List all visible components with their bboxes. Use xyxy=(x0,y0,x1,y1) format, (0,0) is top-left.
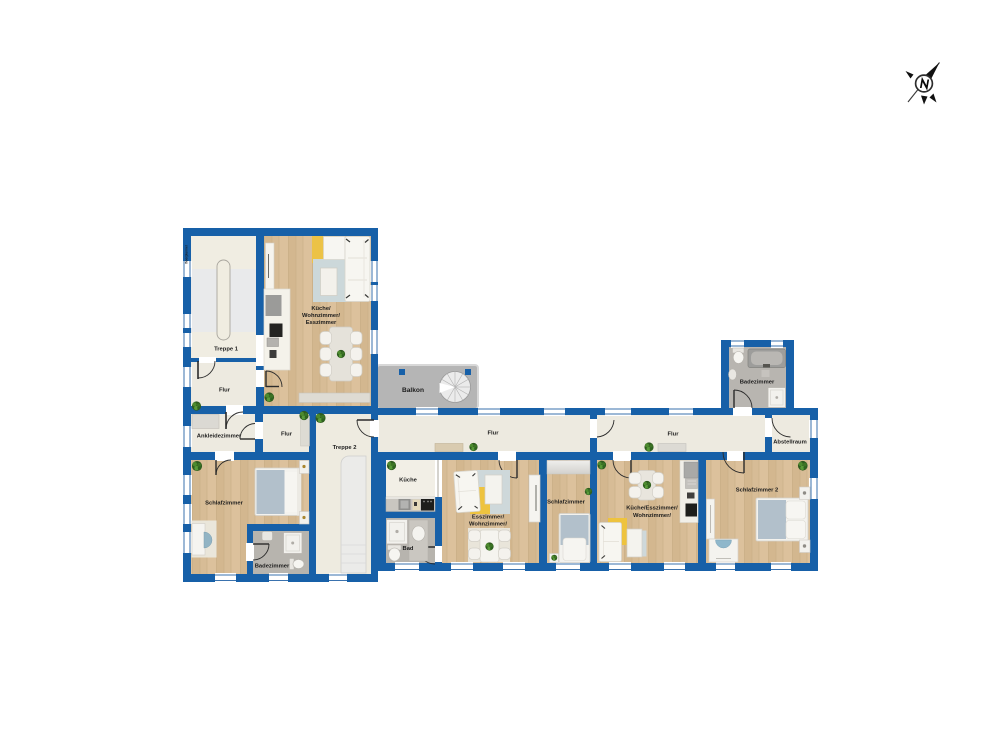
svg-text:Esszimmer/: Esszimmer/ xyxy=(472,515,505,521)
svg-text:Schlafzimmer: Schlafzimmer xyxy=(205,501,243,507)
svg-text:Flur: Flur xyxy=(668,432,680,438)
svg-text:Treppe 2: Treppe 2 xyxy=(333,445,357,451)
svg-text:Schlafzimmer 2: Schlafzimmer 2 xyxy=(736,488,779,494)
svg-text:Esszimmer: Esszimmer xyxy=(306,320,337,326)
svg-text:Balkon: Balkon xyxy=(402,387,424,394)
svg-text:Bad: Bad xyxy=(403,546,414,552)
svg-text:Abstellraum: Abstellraum xyxy=(773,440,807,446)
svg-text:Badezimmer: Badezimmer xyxy=(255,564,290,570)
svg-text:Küche/Esszimmer/: Küche/Esszimmer/ xyxy=(626,506,678,512)
svg-text:floorplanner: floorplanner xyxy=(185,244,189,263)
svg-text:Badezimmer: Badezimmer xyxy=(740,380,775,386)
svg-text:Ankleidezimmer: Ankleidezimmer xyxy=(197,434,242,440)
svg-text:Treppe 1: Treppe 1 xyxy=(214,347,239,353)
svg-text:Schlafzimmer: Schlafzimmer xyxy=(547,500,585,506)
svg-text:Wohnzimmer/: Wohnzimmer/ xyxy=(469,522,507,528)
svg-text:Küche/: Küche/ xyxy=(311,306,331,312)
svg-text:Flur: Flur xyxy=(281,432,293,438)
svg-text:Flur: Flur xyxy=(219,388,231,394)
svg-text:Flur: Flur xyxy=(488,431,500,437)
svg-text:Küche: Küche xyxy=(399,478,417,484)
svg-text:Wohnzimmer/: Wohnzimmer/ xyxy=(302,313,340,319)
svg-text:Wohnzimmer/: Wohnzimmer/ xyxy=(633,513,671,519)
